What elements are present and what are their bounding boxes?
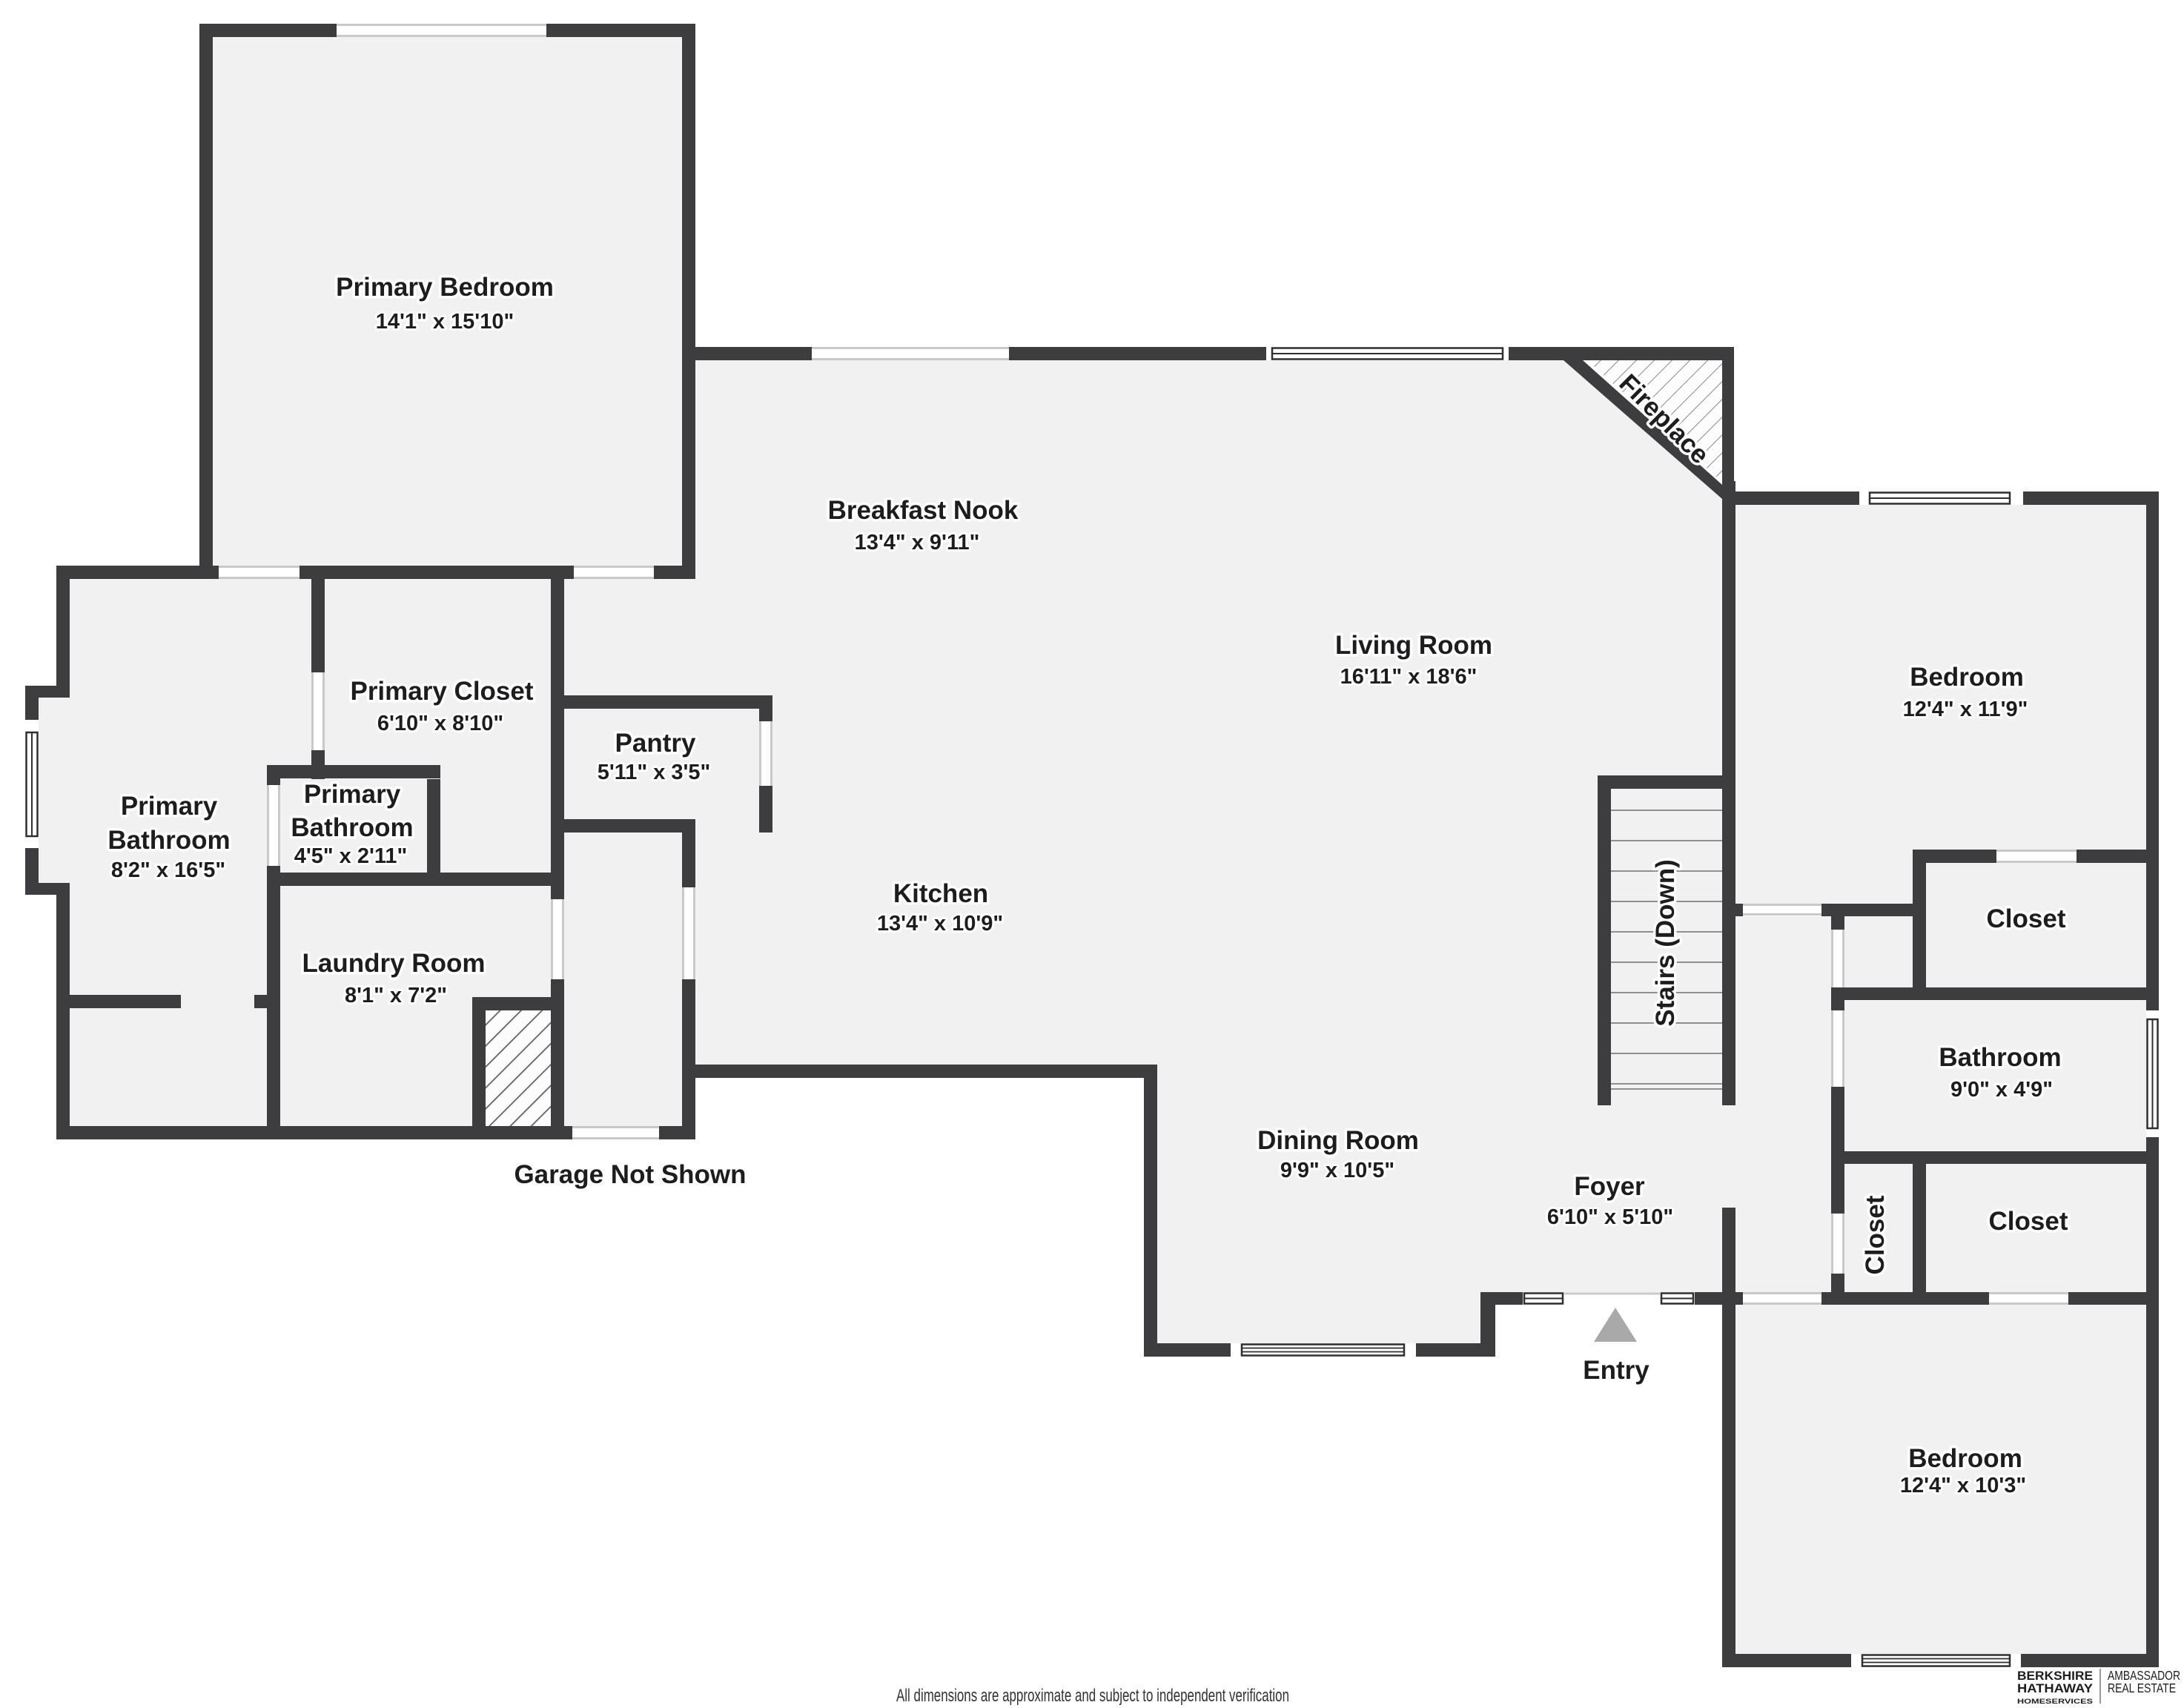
svg-text:13'4" x 9'11": 13'4" x 9'11" bbox=[855, 531, 980, 555]
svg-text:Entry: Entry bbox=[1583, 1356, 1649, 1385]
svg-text:Primary Closet: Primary Closet bbox=[350, 677, 533, 706]
svg-text:Bathroom: Bathroom bbox=[1939, 1043, 2061, 1072]
svg-text:9'9" x 10'5": 9'9" x 10'5" bbox=[1280, 1159, 1394, 1182]
svg-text:9'0" x 4'9": 9'0" x 4'9" bbox=[1950, 1078, 2053, 1102]
svg-text:Foyer: Foyer bbox=[1574, 1172, 1645, 1201]
svg-text:4'5" x 2'11": 4'5" x 2'11" bbox=[294, 844, 408, 868]
svg-text:Bathroom: Bathroom bbox=[291, 813, 413, 842]
svg-text:12'4" x 11'9": 12'4" x 11'9" bbox=[1903, 698, 2028, 721]
svg-text:Primary: Primary bbox=[121, 792, 218, 821]
svg-text:Closet: Closet bbox=[1987, 904, 2066, 933]
svg-text:All dimensions are approximate: All dimensions are approximate and subje… bbox=[896, 1686, 1289, 1706]
svg-text:Stairs (Down): Stairs (Down) bbox=[1651, 859, 1680, 1027]
svg-text:8'2" x 16'5": 8'2" x 16'5" bbox=[111, 858, 225, 882]
svg-text:14'1" x 15'10": 14'1" x 15'10" bbox=[376, 310, 514, 334]
svg-text:Closet: Closet bbox=[1989, 1207, 2068, 1236]
svg-text:Primary Bedroom: Primary Bedroom bbox=[336, 273, 554, 302]
svg-text:Garage Not Shown: Garage Not Shown bbox=[514, 1160, 746, 1189]
svg-text:Bedroom: Bedroom bbox=[1910, 663, 2024, 692]
svg-text:HOMESERVICES: HOMESERVICES bbox=[2017, 1698, 2093, 1706]
svg-text:Primary: Primary bbox=[304, 780, 401, 809]
svg-text:Kitchen: Kitchen bbox=[893, 879, 988, 908]
svg-text:REAL ESTATE: REAL ESTATE bbox=[2108, 1681, 2176, 1695]
svg-text:Bedroom: Bedroom bbox=[1908, 1444, 2022, 1473]
svg-text:HATHAWAY: HATHAWAY bbox=[2017, 1681, 2094, 1695]
svg-text:16'11" x 18'6": 16'11" x 18'6" bbox=[1340, 665, 1477, 689]
svg-text:8'1" x 7'2": 8'1" x 7'2" bbox=[345, 984, 447, 1007]
svg-text:Dining Room: Dining Room bbox=[1257, 1126, 1419, 1155]
svg-text:6'10" x 5'10": 6'10" x 5'10" bbox=[1547, 1205, 1673, 1229]
svg-text:12'4" x 10'3": 12'4" x 10'3" bbox=[1900, 1474, 2026, 1497]
svg-text:Bathroom: Bathroom bbox=[107, 826, 230, 855]
svg-text:Laundry Room: Laundry Room bbox=[302, 949, 486, 978]
svg-text:Breakfast Nook: Breakfast Nook bbox=[828, 496, 1019, 525]
svg-text:6'10" x 8'10": 6'10" x 8'10" bbox=[377, 712, 503, 735]
svg-text:Living Room: Living Room bbox=[1335, 631, 1492, 660]
svg-text:5'11" x 3'5": 5'11" x 3'5" bbox=[598, 761, 711, 784]
svg-text:13'4" x 10'9": 13'4" x 10'9" bbox=[877, 912, 1003, 936]
svg-text:Pantry: Pantry bbox=[615, 729, 696, 758]
svg-text:Closet: Closet bbox=[1861, 1195, 1890, 1274]
